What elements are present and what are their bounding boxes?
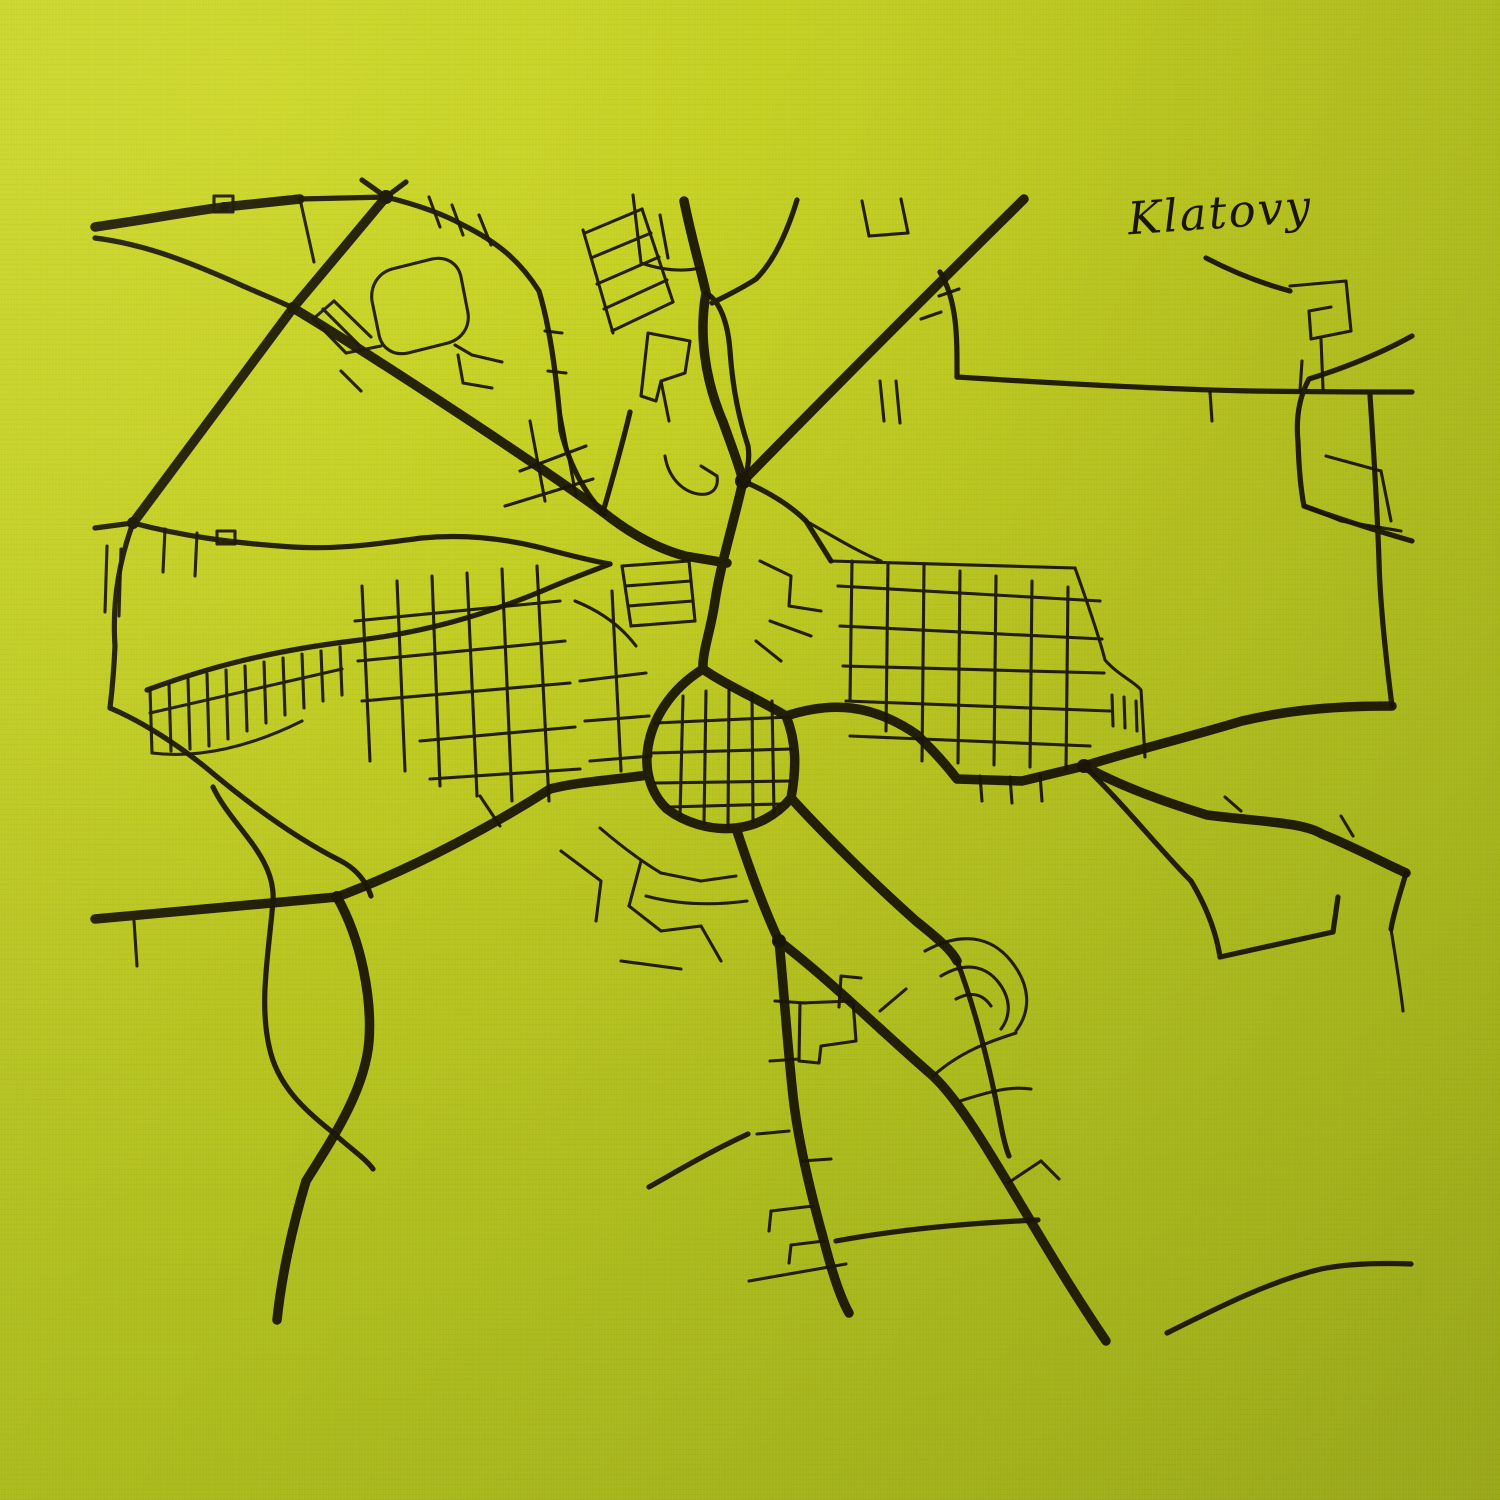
road-path [585,209,642,233]
junction-dot [127,517,139,529]
road-path [641,263,700,270]
road-path [1391,929,1403,1011]
road-path [1008,1161,1041,1183]
road-path [580,673,646,681]
road-path [264,662,266,723]
road-path [622,566,631,626]
road-path [633,195,641,263]
road-path [119,549,121,616]
road-path [283,658,285,715]
road-path [1030,581,1032,767]
junction-dot [772,934,786,948]
road-path [134,921,137,966]
junction-dot [1077,759,1091,773]
road-path [646,896,747,904]
road-path [300,199,314,262]
road-path [668,804,780,807]
road-path [922,566,924,761]
road-path [604,280,667,309]
road-path [1041,1161,1059,1179]
junction-dot [379,190,393,204]
road-path [621,961,681,969]
road-path [701,876,736,881]
road-path [1167,1264,1411,1333]
road-path [95,199,300,227]
road-path [277,897,370,1320]
road-path [133,523,610,564]
road-path [600,828,661,873]
road-path [661,873,701,881]
primary-roads [95,197,1406,1341]
road-path [245,666,247,731]
road-path [629,906,701,931]
road-path [896,381,900,423]
road-path [597,257,659,284]
road-path [583,230,613,333]
road-path [775,1001,806,1003]
road-path [836,1220,1038,1241]
road-path [1300,361,1302,391]
road-path [1210,392,1212,421]
road-path [957,377,1412,392]
road-path [771,1206,813,1211]
road-path [561,851,601,921]
tshirt-fabric-background: Klatovy [0,0,1500,1500]
road-path [880,989,906,1011]
road-path [603,412,630,512]
road-path [1341,816,1353,836]
road-path [901,199,908,233]
road-path [337,775,648,897]
road-path [625,581,691,586]
road-path [862,201,869,236]
minor-streets [105,195,1403,1281]
road-path [789,1245,791,1263]
road-path [1297,336,1412,506]
road-path [420,727,575,741]
road-path [661,381,669,421]
road-path [341,371,361,391]
road-path [736,828,779,941]
road-path [689,561,695,621]
road-path [591,233,651,258]
road-path [1333,897,1338,932]
junction-dot [735,473,751,489]
road-path [684,201,743,481]
road-path [655,781,790,783]
road-path [362,586,370,761]
road-path [791,1241,824,1245]
road-path [105,546,107,612]
road-path [1066,587,1068,769]
road-path [869,233,908,236]
road-path [95,238,293,308]
road-path [933,1033,1016,1076]
road-path [188,679,190,749]
road-path [791,798,957,961]
road-path [1010,777,1012,803]
road-path [467,573,477,796]
road-path [752,693,753,821]
road-path [479,215,491,245]
road-path [660,215,668,258]
road-path [756,641,781,661]
road-path [760,561,821,611]
road-path [455,345,502,362]
road-path [300,197,386,199]
road-path [397,581,405,771]
road-path [703,481,743,669]
road-path [169,684,171,751]
road-path [163,529,165,572]
road-path [770,1059,799,1061]
road-path [321,651,323,701]
road-path [1075,568,1145,757]
road-path [957,961,1009,1156]
road-path [830,561,1075,568]
road-path [921,312,941,319]
road-path [1124,697,1125,728]
junction-dot [219,202,229,212]
road-path [680,696,683,816]
road-path [1391,873,1406,929]
road-path [838,586,1100,601]
road-path [880,381,884,421]
road-path [1381,471,1391,521]
road-path [362,683,570,701]
road-path [704,691,706,823]
road-path [1290,281,1351,339]
road-path [1370,395,1392,706]
road-path [701,926,721,961]
road-path [655,717,790,723]
road-path [1304,506,1341,521]
road-path [340,647,342,695]
road-path [799,1001,856,1063]
road-path [665,456,717,494]
road-path [631,621,695,626]
road-path [548,371,566,373]
road-path [95,897,337,919]
road-path [1136,701,1137,731]
road-path [302,654,304,708]
road-path [1220,932,1333,957]
road-path [1225,797,1241,811]
road-path [628,601,693,606]
road-path [622,561,689,566]
road-path [850,561,852,701]
road-path [940,272,957,377]
road-path [1206,258,1290,291]
road-path [712,200,797,303]
road-path [195,533,197,576]
road-path [612,302,673,331]
road-path [226,670,228,739]
road-path [757,1131,789,1134]
road-path [1040,775,1042,801]
road-path [430,769,580,779]
road-path [743,481,831,561]
road-path [1112,695,1113,726]
road-path [801,1159,831,1161]
road-path [207,674,209,746]
road-path [110,708,371,896]
road-path [649,1134,748,1187]
road-path [358,641,565,661]
road-path [958,571,960,763]
road-path [770,621,811,636]
road-path [372,258,469,353]
junction-dot [598,507,608,517]
road-path [1084,706,1392,766]
road-path [629,861,641,906]
road-path [612,591,621,771]
road-path [1321,339,1323,389]
junction-dot [331,891,343,903]
road-path [432,576,440,786]
road-path [652,749,792,753]
road-path [150,689,152,753]
road-path [743,199,1024,481]
road-path [641,333,690,401]
road-path [850,736,1090,746]
road-path [980,776,982,801]
road-path [133,308,293,523]
junction-dot [287,302,299,314]
road-path [545,331,562,333]
road-path [769,1211,771,1231]
road-path [840,626,1102,639]
road-path [843,666,1104,673]
